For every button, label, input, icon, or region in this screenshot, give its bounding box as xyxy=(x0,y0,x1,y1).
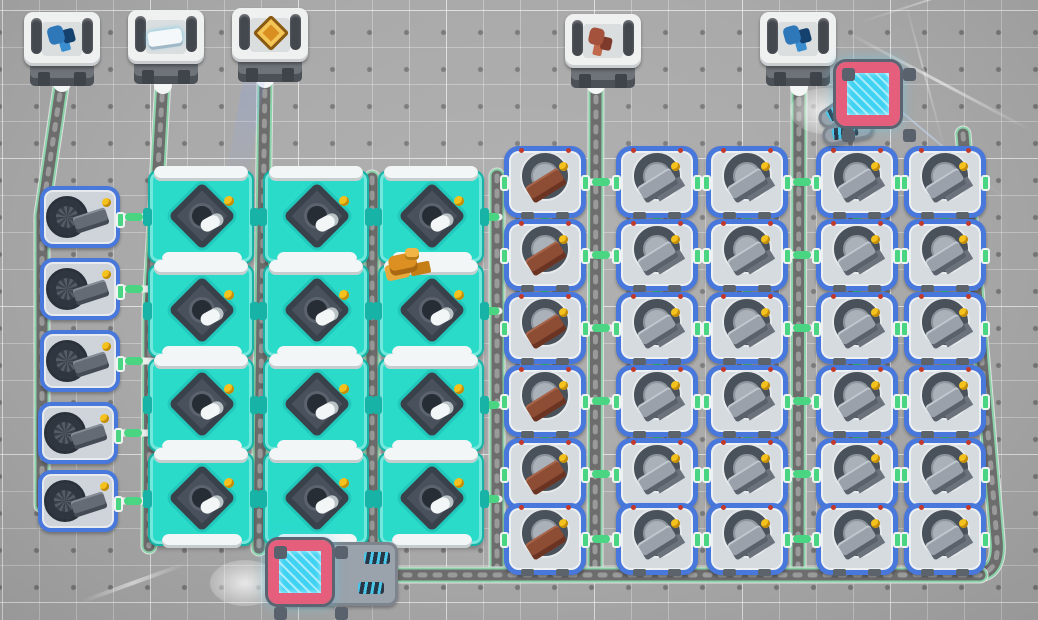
status-indicator xyxy=(671,381,680,390)
status-indicator xyxy=(454,196,464,206)
machine-foot xyxy=(521,285,534,292)
assembler-side-tab xyxy=(480,396,489,414)
crafter-machine[interactable] xyxy=(904,503,986,575)
input-port xyxy=(812,175,821,191)
energy-cube-crystal xyxy=(268,540,332,604)
assembler-machine[interactable] xyxy=(263,264,369,358)
machine-foot xyxy=(633,569,646,576)
corner-light xyxy=(919,294,924,299)
status-indicator xyxy=(559,454,568,463)
corner-light xyxy=(919,367,924,372)
input-port xyxy=(612,467,621,483)
machine-foot xyxy=(556,358,569,365)
output-port xyxy=(693,248,702,264)
status-indicator xyxy=(671,162,680,171)
machine-foot xyxy=(521,212,534,219)
status-indicator xyxy=(761,519,770,528)
input-port xyxy=(812,394,821,410)
corner-light xyxy=(519,221,524,226)
crafter-machine[interactable] xyxy=(706,365,788,437)
crafter-machine[interactable] xyxy=(616,292,698,364)
assembler-machine[interactable] xyxy=(148,358,254,452)
status-indicator xyxy=(559,381,568,390)
machine-foot xyxy=(556,212,569,219)
machine-foot xyxy=(723,285,736,292)
input-port xyxy=(500,467,509,483)
crafter-machine[interactable] xyxy=(816,365,898,437)
output-port xyxy=(581,467,590,483)
assembler-top-trim xyxy=(154,166,248,181)
corner-light xyxy=(721,294,726,299)
corner-light xyxy=(566,148,571,153)
machine-foot xyxy=(668,358,681,365)
machine-foot xyxy=(668,285,681,292)
output-port xyxy=(693,467,702,483)
machine-foot xyxy=(521,569,534,576)
miner-machine[interactable] xyxy=(40,330,120,392)
status-indicator xyxy=(671,519,680,528)
crafter-machine[interactable] xyxy=(616,503,698,575)
corner-light xyxy=(721,221,726,226)
miner-machine[interactable] xyxy=(40,186,120,248)
crafter-machine[interactable] xyxy=(706,292,788,364)
status-indicator xyxy=(339,478,349,488)
status-indicator xyxy=(559,162,568,171)
crafter-machine[interactable] xyxy=(904,438,986,510)
status-indicator xyxy=(871,381,880,390)
machine-foot xyxy=(723,431,736,438)
corner-light xyxy=(721,148,726,153)
corner-light xyxy=(966,440,971,445)
machine-foot xyxy=(868,212,881,219)
crafter-machine[interactable] xyxy=(816,219,898,291)
corner-light xyxy=(831,294,836,299)
machine-foot xyxy=(521,431,534,438)
status-indicator xyxy=(224,196,234,206)
container-base-notch xyxy=(142,70,154,84)
machine-foot xyxy=(723,569,736,576)
assembler-top-trim xyxy=(269,354,363,369)
output-port xyxy=(981,321,990,337)
container-base-notch xyxy=(246,68,258,82)
orange-drone[interactable] xyxy=(381,248,425,284)
container-base-notch xyxy=(38,72,50,86)
assembler-side-tab xyxy=(258,302,267,320)
container-slot-left xyxy=(135,16,146,52)
cube-chip xyxy=(358,582,384,594)
corner-light xyxy=(566,505,571,510)
crafter-machine[interactable] xyxy=(504,146,586,218)
status-indicator xyxy=(761,381,770,390)
status-indicator xyxy=(559,308,568,317)
status-indicator xyxy=(761,162,770,171)
machine-foot xyxy=(556,569,569,576)
crafter-machine[interactable] xyxy=(616,146,698,218)
status-indicator xyxy=(559,519,568,528)
status-indicator xyxy=(671,235,680,244)
assembler-machine[interactable] xyxy=(378,452,484,546)
miner-machine[interactable] xyxy=(38,402,118,464)
assembler-machine[interactable] xyxy=(148,452,254,546)
input-port xyxy=(702,394,711,410)
status-indicator xyxy=(454,290,464,300)
corner-light xyxy=(519,505,524,510)
input-port xyxy=(500,248,509,264)
machine-foot xyxy=(868,569,881,576)
status-indicator xyxy=(454,478,464,488)
machine-foot xyxy=(956,431,969,438)
assembler-side-tab xyxy=(143,396,152,414)
machine-foot xyxy=(868,285,881,292)
corner-light xyxy=(831,367,836,372)
input-port xyxy=(702,248,711,264)
container-slot-right xyxy=(818,18,829,54)
cube-corner-cap xyxy=(903,129,916,142)
cube-corner-cap xyxy=(842,68,855,81)
corner-light xyxy=(768,440,773,445)
machine-foot xyxy=(758,212,771,219)
machine-foot xyxy=(633,285,646,292)
machine-foot xyxy=(758,431,771,438)
input-port xyxy=(812,467,821,483)
input-port xyxy=(900,321,909,337)
output-port xyxy=(783,175,792,191)
machine-foot xyxy=(633,358,646,365)
corner-light xyxy=(519,367,524,372)
input-port xyxy=(612,394,621,410)
assembler-bottom-trim xyxy=(162,534,242,548)
corner-light xyxy=(768,221,773,226)
corner-light xyxy=(768,148,773,153)
input-port xyxy=(900,467,909,483)
machine-foot xyxy=(723,212,736,219)
output-port xyxy=(116,356,125,372)
input-port xyxy=(702,467,711,483)
storage-container[interactable] xyxy=(232,8,308,86)
machine-foot xyxy=(956,569,969,576)
assembler-side-tab xyxy=(258,396,267,414)
crafter-machine[interactable] xyxy=(816,438,898,510)
assembler-top-trim xyxy=(384,354,478,369)
output-port xyxy=(116,212,125,228)
crafter-machine[interactable] xyxy=(904,219,986,291)
energy-cube-node[interactable] xyxy=(820,60,970,170)
assembler-side-tab xyxy=(480,302,489,320)
assembler-side-tab xyxy=(373,396,382,414)
container-slot-left xyxy=(767,18,778,54)
corner-light xyxy=(721,505,726,510)
assembler-side-tab xyxy=(143,490,152,508)
status-indicator xyxy=(959,454,968,463)
assembler-top-trim xyxy=(154,260,248,275)
output-port xyxy=(981,175,990,191)
output-port xyxy=(783,394,792,410)
machine-foot xyxy=(921,569,934,576)
input-port xyxy=(500,532,509,548)
output-port xyxy=(581,532,590,548)
status-indicator xyxy=(100,414,109,423)
assembler-machine[interactable] xyxy=(263,358,369,452)
crafter-machine[interactable] xyxy=(504,365,586,437)
corner-light xyxy=(678,440,683,445)
output-port xyxy=(116,284,125,300)
corner-light xyxy=(878,294,883,299)
corner-light xyxy=(721,367,726,372)
assembler-top-trim xyxy=(269,260,363,275)
corner-light xyxy=(678,294,683,299)
output-port xyxy=(783,321,792,337)
machine-foot xyxy=(833,358,846,365)
container-base-notch xyxy=(579,74,591,88)
status-indicator xyxy=(959,308,968,317)
machine-foot xyxy=(868,431,881,438)
input-port xyxy=(702,175,711,191)
input-port xyxy=(612,248,621,264)
crafter-machine[interactable] xyxy=(616,365,698,437)
assembler-machine[interactable] xyxy=(263,452,369,546)
status-indicator xyxy=(871,519,880,528)
status-indicator xyxy=(671,454,680,463)
cube-corner-cap xyxy=(335,607,348,620)
corner-light xyxy=(519,440,524,445)
container-slot-right xyxy=(290,14,301,50)
status-indicator xyxy=(224,290,234,300)
machine-foot xyxy=(956,212,969,219)
machine-foot xyxy=(833,285,846,292)
assembler-side-tab xyxy=(143,302,152,320)
status-indicator xyxy=(871,308,880,317)
corner-light xyxy=(831,505,836,510)
machine-foot xyxy=(956,358,969,365)
input-port xyxy=(900,394,909,410)
assembler-top-trim xyxy=(384,448,478,463)
container-slot-right xyxy=(186,16,197,52)
container-base-notch xyxy=(282,68,294,82)
output-port xyxy=(693,394,702,410)
machine-foot xyxy=(758,358,771,365)
corner-light xyxy=(768,505,773,510)
crafter-machine[interactable] xyxy=(706,219,788,291)
assembler-bottom-trim xyxy=(392,534,472,548)
crafter-machine[interactable] xyxy=(816,503,898,575)
status-indicator xyxy=(339,384,349,394)
status-indicator xyxy=(761,235,770,244)
corner-light xyxy=(566,367,571,372)
corner-light xyxy=(721,440,726,445)
input-port xyxy=(900,175,909,191)
machine-foot xyxy=(956,285,969,292)
energy-cube-crystal xyxy=(836,62,900,126)
machine-foot xyxy=(921,285,934,292)
input-port xyxy=(900,248,909,264)
machine-foot xyxy=(633,212,646,219)
cube-corner-cap xyxy=(274,546,287,559)
status-indicator xyxy=(102,342,111,351)
corner-light xyxy=(831,221,836,226)
assembler-side-tab xyxy=(373,208,382,226)
output-port xyxy=(581,248,590,264)
machine-foot xyxy=(668,569,681,576)
status-indicator xyxy=(871,454,880,463)
input-port xyxy=(612,321,621,337)
container-slot-right xyxy=(82,18,93,54)
input-port xyxy=(812,248,821,264)
output-port xyxy=(693,532,702,548)
corner-light xyxy=(768,294,773,299)
machine-foot xyxy=(556,431,569,438)
status-indicator xyxy=(454,384,464,394)
crafter-machine[interactable] xyxy=(504,503,586,575)
machine-foot xyxy=(758,569,771,576)
output-port xyxy=(981,248,990,264)
assembler-side-tab xyxy=(373,490,382,508)
output-port xyxy=(581,175,590,191)
assembler-machine[interactable] xyxy=(148,170,254,264)
corner-light xyxy=(631,367,636,372)
machine-foot xyxy=(556,285,569,292)
crafter-machine[interactable] xyxy=(616,219,698,291)
corner-light xyxy=(919,440,924,445)
energy-cube-node[interactable] xyxy=(252,538,402,620)
corner-light xyxy=(919,221,924,226)
status-indicator xyxy=(100,482,109,491)
status-indicator xyxy=(339,196,349,206)
status-indicator xyxy=(871,235,880,244)
assembler-side-tab xyxy=(373,302,382,320)
assembler-top-trim xyxy=(269,448,363,463)
input-port xyxy=(702,532,711,548)
miner-machine[interactable] xyxy=(40,258,120,320)
crafter-machine[interactable] xyxy=(706,146,788,218)
assembler-side-tab xyxy=(480,208,489,226)
corner-light xyxy=(878,221,883,226)
cube-corner-cap xyxy=(842,129,855,142)
output-port xyxy=(693,321,702,337)
input-port xyxy=(612,532,621,548)
machine-foot xyxy=(833,212,846,219)
status-indicator xyxy=(102,198,111,207)
crafter-machine[interactable] xyxy=(904,365,986,437)
machine-foot xyxy=(833,569,846,576)
assembler-machine[interactable] xyxy=(148,264,254,358)
corner-light xyxy=(566,440,571,445)
assembler-top-trim xyxy=(384,166,478,181)
corner-light xyxy=(678,505,683,510)
cube-corner-cap xyxy=(335,546,348,559)
assembler-side-tab xyxy=(258,490,267,508)
status-indicator xyxy=(559,235,568,244)
status-indicator xyxy=(959,235,968,244)
machine-foot xyxy=(921,358,934,365)
output-port xyxy=(783,248,792,264)
crafter-machine[interactable] xyxy=(904,292,986,364)
container-slot-left xyxy=(572,20,583,56)
crafter-machine[interactable] xyxy=(706,438,788,510)
corner-light xyxy=(678,367,683,372)
assembler-side-tab xyxy=(258,208,267,226)
status-indicator xyxy=(224,384,234,394)
output-port xyxy=(581,321,590,337)
machine-foot xyxy=(868,358,881,365)
corner-light xyxy=(631,440,636,445)
assembler-machine[interactable] xyxy=(378,358,484,452)
corner-light xyxy=(519,294,524,299)
output-port xyxy=(114,496,123,512)
assembler-top-trim xyxy=(154,448,248,463)
machine-foot xyxy=(921,212,934,219)
corner-light xyxy=(966,505,971,510)
machine-foot xyxy=(921,431,934,438)
assembler-side-tab xyxy=(480,490,489,508)
container-slot-left xyxy=(239,14,250,50)
corner-light xyxy=(631,505,636,510)
drone-head xyxy=(405,248,419,260)
corner-light xyxy=(678,148,683,153)
cube-chip xyxy=(364,552,390,564)
cube-corner-cap xyxy=(274,607,287,620)
corner-light xyxy=(566,221,571,226)
status-indicator xyxy=(339,290,349,300)
corner-light xyxy=(966,221,971,226)
input-port xyxy=(812,321,821,337)
input-port xyxy=(500,394,509,410)
crafter-machine[interactable] xyxy=(504,292,586,364)
corner-light xyxy=(919,505,924,510)
output-port xyxy=(693,175,702,191)
output-port xyxy=(114,428,123,444)
crafter-machine[interactable] xyxy=(706,503,788,575)
status-indicator xyxy=(959,519,968,528)
assembler-machine[interactable] xyxy=(263,170,369,264)
corner-light xyxy=(831,440,836,445)
machine-foot xyxy=(758,285,771,292)
corner-light xyxy=(631,221,636,226)
crafter-machine[interactable] xyxy=(504,438,586,510)
storage-container[interactable] xyxy=(24,12,100,90)
storage-container[interactable] xyxy=(565,14,641,92)
input-port xyxy=(612,175,621,191)
input-port xyxy=(900,532,909,548)
machine-foot xyxy=(521,358,534,365)
factory-canvas xyxy=(0,0,1038,620)
input-port xyxy=(500,175,509,191)
output-port xyxy=(783,467,792,483)
input-port xyxy=(702,321,711,337)
machine-foot xyxy=(723,358,736,365)
miner-machine[interactable] xyxy=(38,470,118,532)
crafter-machine[interactable] xyxy=(504,219,586,291)
status-indicator xyxy=(761,308,770,317)
input-port xyxy=(812,532,821,548)
corner-light xyxy=(678,221,683,226)
container-base-notch xyxy=(615,74,627,88)
assembler-side-tab xyxy=(143,208,152,226)
corner-light xyxy=(631,148,636,153)
output-port xyxy=(981,467,990,483)
machine-foot xyxy=(668,212,681,219)
corner-light xyxy=(768,367,773,372)
corner-light xyxy=(966,294,971,299)
crafter-machine[interactable] xyxy=(816,292,898,364)
cube-corner-cap xyxy=(903,68,916,81)
machine-foot xyxy=(668,431,681,438)
assembler-top-trim xyxy=(154,354,248,369)
crafter-machine[interactable] xyxy=(616,438,698,510)
corner-light xyxy=(966,367,971,372)
corner-light xyxy=(878,367,883,372)
corner-light xyxy=(878,505,883,510)
storage-container[interactable] xyxy=(128,10,204,88)
